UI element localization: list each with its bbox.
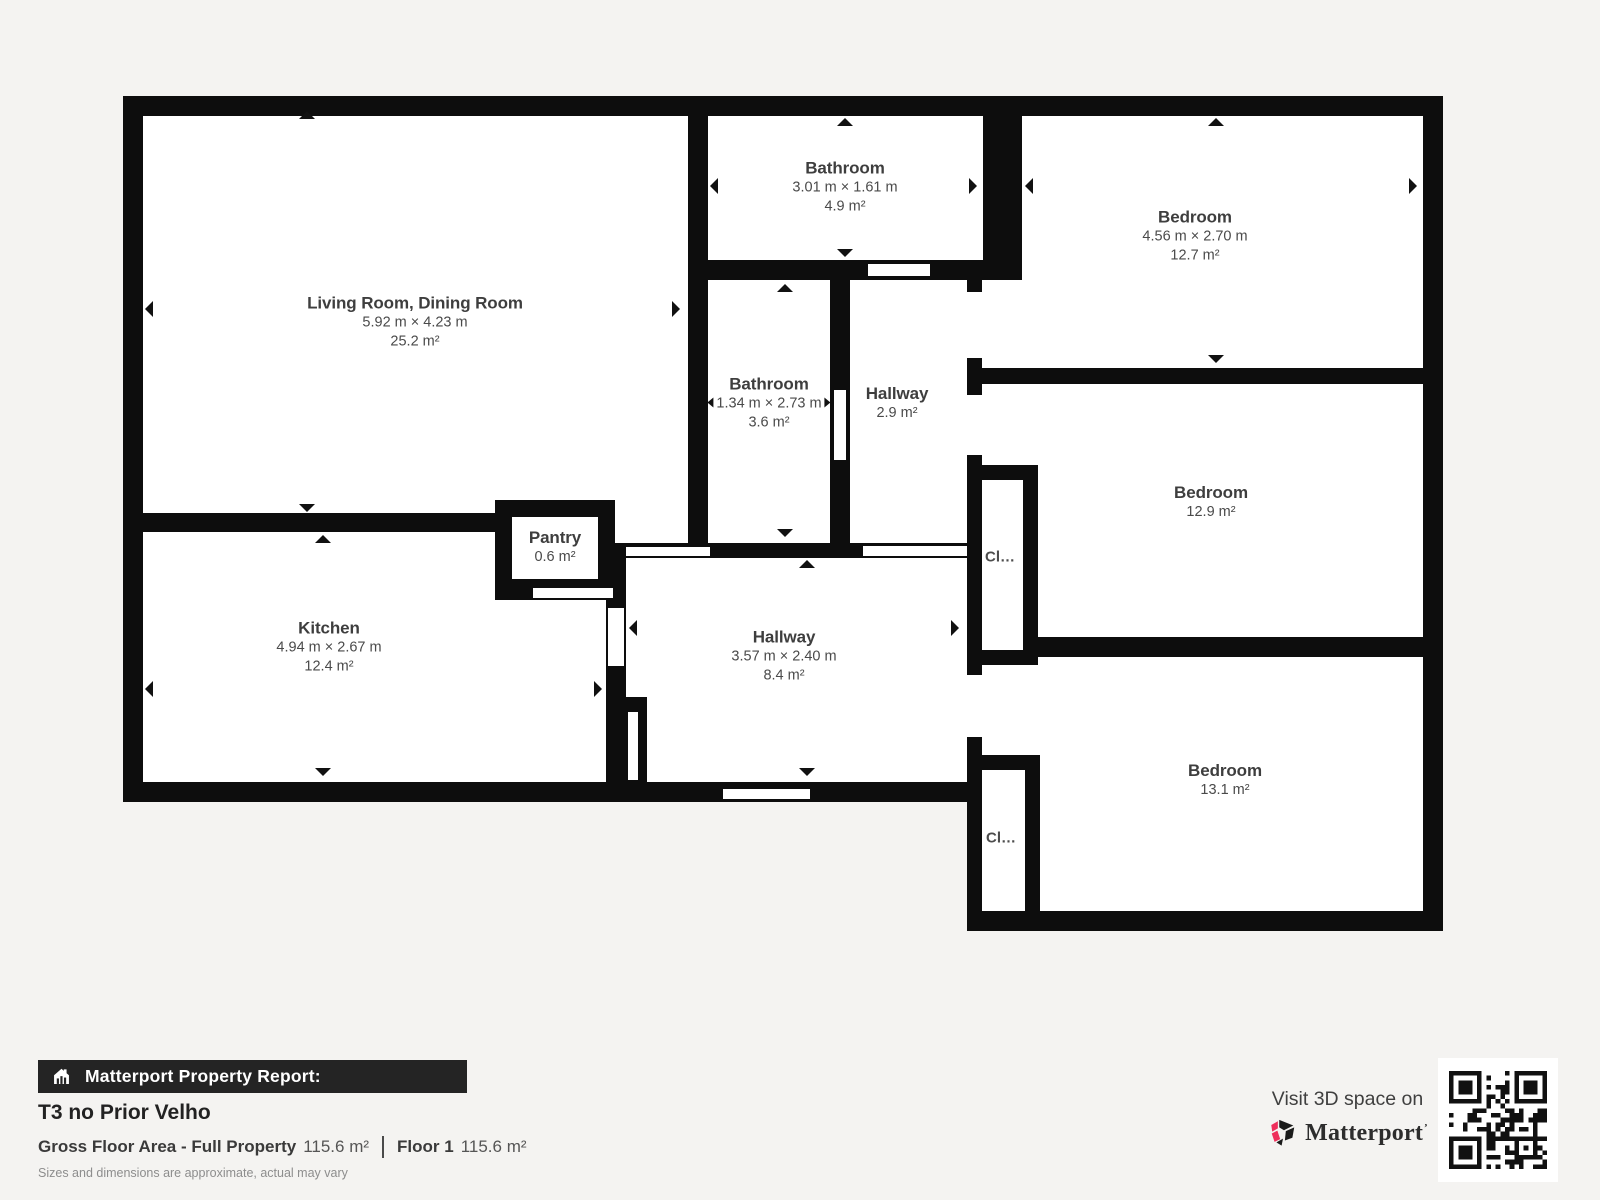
room-label-hallway-small: Hallway 2.9 m²	[866, 384, 929, 423]
floor-bedroom-top-nook	[982, 280, 1022, 368]
wall	[1025, 755, 1040, 911]
matterport-brand: Matterport	[1250, 1118, 1445, 1148]
matterport-floorplan-report: Living Room, Dining Room 5.92 m × 4.23 m…	[0, 0, 1600, 1200]
room-area: 13.1 m²	[1188, 781, 1262, 800]
room-area: 12.4 m²	[276, 657, 381, 676]
door-opening	[863, 546, 967, 556]
door-opening	[967, 395, 982, 455]
measure-arrow-icon	[837, 249, 853, 257]
door-opening	[834, 390, 846, 460]
report-banner-label: Matterport Property Report:	[85, 1066, 321, 1087]
measure-arrow-icon	[145, 301, 153, 317]
matterport-wordmark: Matterport	[1305, 1120, 1427, 1147]
room-dimensions: 3.01 m × 1.61 m	[792, 179, 897, 198]
wall	[967, 650, 1038, 665]
measure-arrow-icon	[145, 681, 153, 697]
wall	[1423, 96, 1443, 931]
room-name: Hallway	[866, 384, 929, 404]
measure-arrow-icon	[969, 178, 977, 194]
room-area: 2.9 m²	[866, 404, 929, 423]
door-opening	[628, 712, 638, 780]
room-name: Pantry	[529, 528, 581, 548]
measure-arrow-icon	[1025, 178, 1033, 194]
room-label-hallway-main: Hallway 3.57 m × 2.40 m 8.4 m²	[731, 628, 836, 685]
room-name: Bathroom	[704, 375, 833, 395]
measure-arrow-icon	[710, 178, 718, 194]
door-opening	[967, 675, 982, 737]
room-name: Hallway	[731, 628, 836, 648]
wall	[123, 513, 495, 532]
measure-arrow-icon	[799, 768, 815, 776]
measure-arrow-icon	[1208, 118, 1224, 126]
measure-arrow-icon	[799, 560, 815, 568]
room-label-closet-bottom: Cl…	[986, 830, 1016, 847]
floor-area-value: 115.6 m²	[461, 1137, 527, 1157]
gross-floor-area-label: Gross Floor Area - Full Property	[38, 1137, 296, 1157]
measure-arrow-icon	[951, 620, 959, 636]
wall	[983, 96, 1022, 280]
room-dimensions: 1.34 m × 2.73 m	[704, 395, 833, 414]
wall	[123, 782, 982, 802]
wall	[967, 368, 1443, 384]
measure-arrow-icon	[315, 768, 331, 776]
room-label-closet-mid: Cl…	[985, 549, 1015, 566]
room-label-bedroom-top: Bedroom 4.56 m × 2.70 m 12.7 m²	[1142, 208, 1247, 265]
wall	[967, 637, 1443, 657]
measure-arrow-icon	[777, 529, 793, 537]
measure-arrow-icon	[299, 504, 315, 512]
room-area: 12.7 m²	[1142, 246, 1247, 265]
report-banner: Matterport Property Report:	[38, 1060, 467, 1093]
room-name: Bathroom	[792, 159, 897, 179]
room-dimensions: 4.56 m × 2.70 m	[1142, 228, 1247, 247]
floor-label: Floor 1	[397, 1137, 454, 1157]
wall	[606, 710, 647, 782]
room-area: 8.4 m²	[731, 666, 836, 685]
room-area: 0.6 m²	[529, 548, 581, 567]
room-area: 4.9 m²	[792, 197, 897, 216]
3d-space-promo: Visit 3D space on Matterport	[1250, 1088, 1445, 1148]
measure-arrow-icon	[315, 535, 331, 543]
area-metrics: Gross Floor Area - Full Property 115.6 m…	[38, 1136, 527, 1158]
measure-arrow-icon	[777, 284, 793, 292]
measure-arrow-icon	[1208, 355, 1224, 363]
gross-floor-area-value: 115.6 m²	[303, 1137, 369, 1157]
measure-arrow-icon	[825, 398, 831, 408]
room-area: 12.9 m²	[1174, 503, 1248, 522]
wall	[1023, 465, 1038, 665]
qr-code-pattern	[1449, 1071, 1547, 1169]
room-label-pantry: Pantry 0.6 m²	[529, 528, 581, 567]
wall	[123, 96, 143, 802]
room-label-kitchen: Kitchen 4.94 m × 2.67 m 12.4 m²	[276, 619, 381, 676]
room-area: 25.2 m²	[307, 332, 523, 351]
room-area: 3.6 m²	[704, 413, 833, 432]
house-report-icon	[51, 1066, 72, 1087]
measure-arrow-icon	[707, 398, 713, 408]
wall	[688, 96, 708, 543]
measure-arrow-icon	[629, 620, 637, 636]
room-dimensions: 4.94 m × 2.67 m	[276, 639, 381, 658]
measure-arrow-icon	[299, 111, 315, 119]
disclaimer-text: Sizes and dimensions are approximate, ac…	[38, 1166, 348, 1180]
room-label-bedroom-bottom: Bedroom 13.1 m²	[1188, 761, 1262, 800]
wall	[967, 911, 1443, 931]
visit-3d-text: Visit 3D space on	[1250, 1088, 1445, 1111]
room-name: Bedroom	[1188, 761, 1262, 781]
measure-arrow-icon	[837, 118, 853, 126]
matterport-logo-icon	[1268, 1118, 1298, 1148]
door-opening	[723, 789, 810, 799]
room-label-bathroom-mid: Bathroom 1.34 m × 2.73 m 3.6 m²	[704, 375, 833, 432]
room-dimensions: 3.57 m × 2.40 m	[731, 648, 836, 667]
room-dimensions: 5.92 m × 4.23 m	[307, 314, 523, 333]
door-opening	[533, 588, 613, 598]
door-opening	[626, 547, 710, 556]
qr-code[interactable]	[1438, 1058, 1558, 1182]
metrics-divider	[382, 1136, 384, 1158]
wall	[688, 260, 1022, 280]
wall	[606, 697, 647, 710]
room-label-living: Living Room, Dining Room 5.92 m × 4.23 m…	[307, 294, 523, 351]
door-opening	[868, 264, 930, 276]
room-name: Living Room, Dining Room	[307, 294, 523, 314]
door-opening	[967, 292, 982, 358]
room-name: Kitchen	[276, 619, 381, 639]
door-opening	[608, 608, 624, 666]
measure-arrow-icon	[594, 681, 602, 697]
measure-arrow-icon	[1409, 178, 1417, 194]
room-label-bedroom-mid: Bedroom 12.9 m²	[1174, 483, 1248, 522]
measure-arrow-icon	[672, 301, 680, 317]
room-name: Bedroom	[1142, 208, 1247, 228]
room-label-bathroom-top: Bathroom 3.01 m × 1.61 m 4.9 m²	[792, 159, 897, 216]
property-title: T3 no Prior Velho	[38, 1101, 211, 1125]
wall	[123, 96, 1443, 116]
room-name: Bedroom	[1174, 483, 1248, 503]
